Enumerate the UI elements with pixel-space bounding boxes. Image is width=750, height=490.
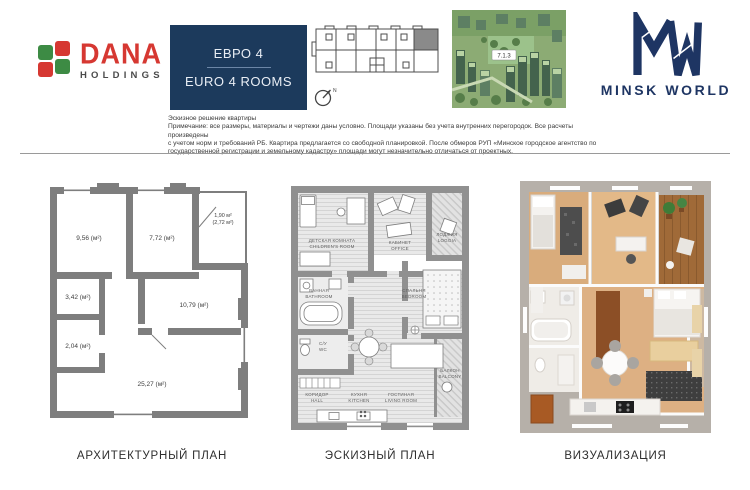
highlighted-unit bbox=[414, 29, 438, 50]
room-label-bath-en: BATHROOM bbox=[305, 294, 332, 299]
architectural-plan-drawing: 9,56 (м²) 7,72 (м²) 1,90 м² (2,72 м²) 3,… bbox=[42, 183, 262, 433]
room-label-children-en: CHILDREN'S ROOM bbox=[309, 244, 354, 249]
aerial-building-label: 7.1.3 bbox=[497, 54, 511, 60]
room-label-loggia-en: LOGGIA bbox=[438, 238, 456, 243]
svg-text:N: N bbox=[333, 88, 337, 94]
separator-line bbox=[20, 153, 730, 154]
building-floor-plan-inset: N bbox=[311, 22, 443, 110]
caption-sketch-plan: ЭСКИЗНЫЙ ПЛАН bbox=[287, 450, 473, 462]
area-label-room2: 7,72 (м²) bbox=[149, 235, 174, 242]
room-label-office-ru: КАБИНЕТ bbox=[389, 240, 411, 245]
unit-type-badge: ЕВРО 4 EURO 4 ROOMS bbox=[170, 25, 307, 110]
room-label-kitchen-ru: КУХНЯ bbox=[351, 392, 367, 397]
sketch-plan-drawing: ДЕТСКАЯ КОМНАТА CHILDREN'S ROOM КАБИНЕТ … bbox=[287, 182, 473, 434]
room-label-wc-ru: С/У bbox=[319, 341, 327, 346]
area-label-bedroom: 10,79 (м²) bbox=[179, 302, 208, 309]
unit-type-en: EURO 4 ROOMS bbox=[185, 74, 292, 89]
visualization-drawing bbox=[520, 181, 711, 433]
room-label-office-en: OFFICE bbox=[391, 246, 409, 251]
dana-logo-text: DANA HOLDINGS bbox=[80, 41, 164, 81]
area-label-wc: 2,04 (м²) bbox=[65, 343, 90, 350]
room-label-balcony-en: BALCONY bbox=[439, 374, 462, 379]
disclaimer-line: Примечание: все размеры, материалы и чер… bbox=[168, 123, 598, 140]
room-label-kitchen-en: KITCHEN bbox=[348, 398, 369, 403]
sketch-plan-figure: ДЕТСКАЯ КОМНАТА CHILDREN'S ROOM КАБИНЕТ … bbox=[287, 182, 473, 434]
room-label-loggia-ru: ЛОДЖИЯ bbox=[436, 232, 457, 237]
caption-visualization: ВИЗУАЛИЗАЦИЯ bbox=[520, 450, 711, 462]
aerial-render: 7.1.3 bbox=[452, 10, 566, 108]
area-label-bath: 3,42 (м²) bbox=[65, 294, 90, 301]
area-label-loggia-2: (2,72 м²) bbox=[212, 220, 233, 226]
dana-logo-word: DANA bbox=[80, 41, 164, 69]
area-label-living: 25,27 (м²) bbox=[137, 381, 166, 388]
room-label-balcony-ru: БАЛКОН bbox=[440, 368, 459, 373]
area-label-loggia: 1,90 м² bbox=[214, 213, 232, 219]
room-label-bedroom-ru: СПАЛЬНЯ bbox=[402, 288, 425, 293]
architectural-plan-figure: 9,56 (м²) 7,72 (м²) 1,90 м² (2,72 м²) 3,… bbox=[42, 183, 262, 433]
caption-architectural-plan: АРХИТЕКТУРНЫЙ ПЛАН bbox=[42, 450, 262, 462]
room-label-bath-ru: ВАННАЯ bbox=[309, 288, 329, 293]
dana-logo-holdings: HOLDINGS bbox=[80, 71, 164, 81]
brochure-page: DANA HOLDINGS ЕВРО 4 EURO 4 ROOMS bbox=[0, 0, 750, 490]
room-label-living-ru: ГОСТИНАЯ bbox=[388, 392, 414, 397]
building-floor-plate-drawing bbox=[311, 22, 443, 82]
minsk-world-wordmark: MINSK WORLD bbox=[601, 82, 731, 98]
compass-icon: N bbox=[313, 84, 339, 110]
disclaimer: Эскизное решение квартиры Примечание: вс… bbox=[168, 115, 598, 156]
room-label-wc-en: WC bbox=[319, 347, 327, 352]
room-label-bedroom-en: BEDROOM bbox=[402, 294, 427, 299]
room-label-hall-en: HALL bbox=[311, 398, 323, 403]
mw-monogram-icon bbox=[630, 12, 702, 78]
dana-logo-squares-icon bbox=[38, 41, 72, 81]
unit-type-divider bbox=[207, 67, 271, 68]
room-label-children-ru: ДЕТСКАЯ КОМНАТА bbox=[309, 238, 356, 243]
area-label-room1: 9,56 (м²) bbox=[76, 235, 101, 242]
unit-type-ru: ЕВРО 4 bbox=[214, 46, 264, 61]
minsk-world-logo: MINSK WORLD bbox=[598, 12, 734, 104]
disclaimer-line: с учетом норм и требований РБ. Квартира … bbox=[168, 140, 598, 148]
visualization-figure bbox=[520, 181, 711, 433]
aerial-render-drawing: 7.1.3 bbox=[452, 10, 566, 108]
room-label-hall-ru: КОРИДОР bbox=[305, 392, 328, 397]
room-label-living-en: LIVING ROOM bbox=[385, 398, 417, 403]
dana-holdings-logo: DANA HOLDINGS bbox=[38, 36, 168, 86]
